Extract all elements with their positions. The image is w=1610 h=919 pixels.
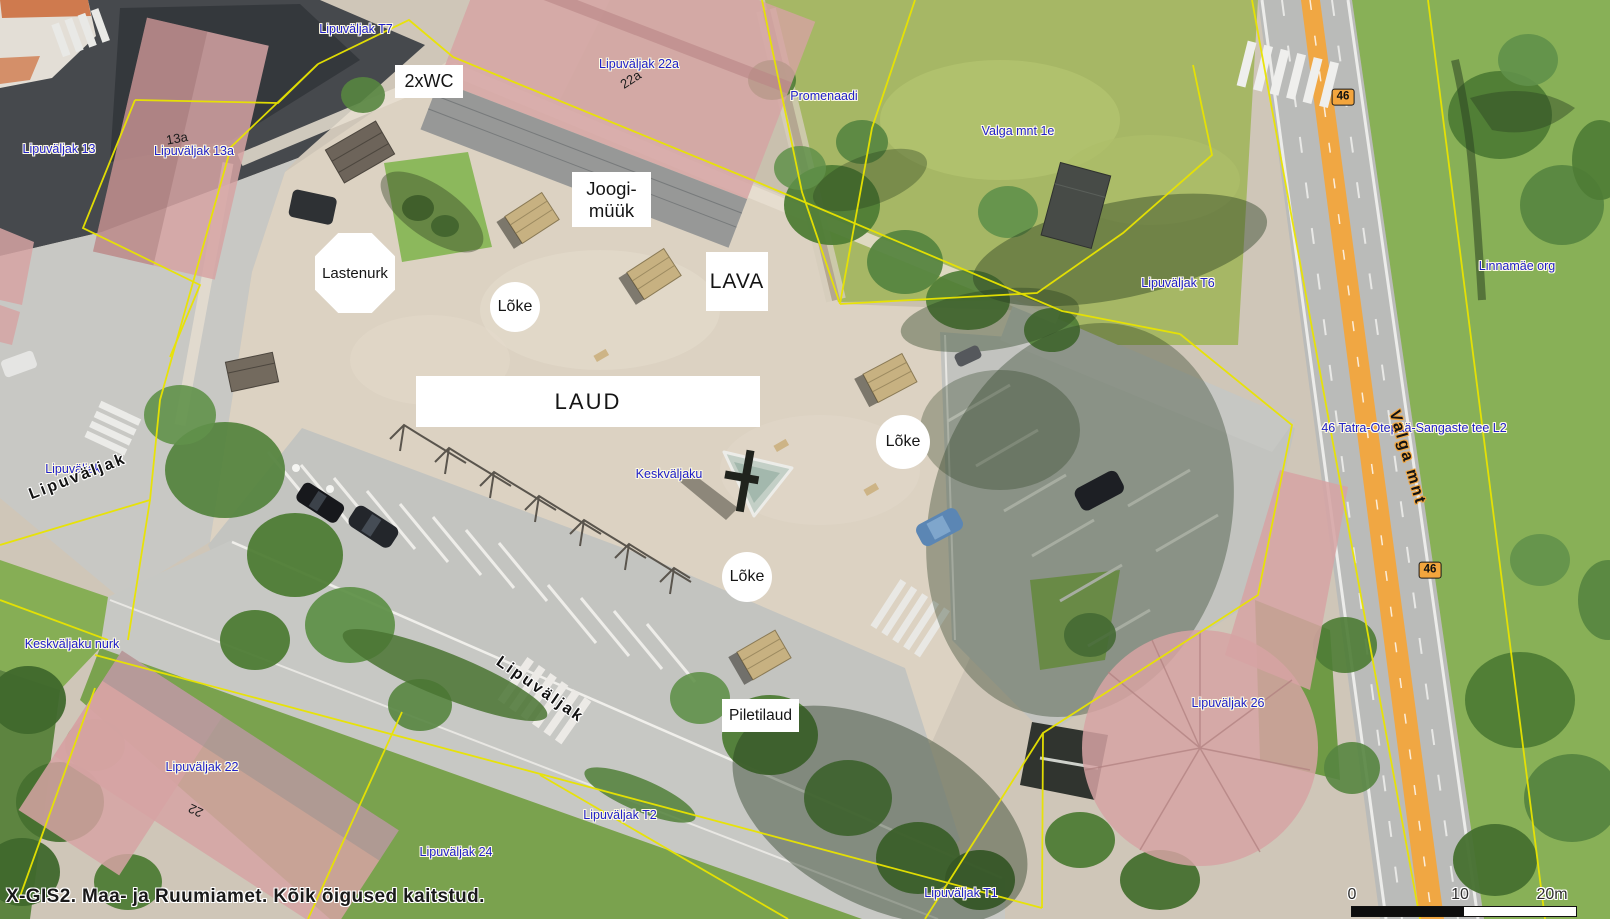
- attribution: X-GIS2. Maa- ja Ruumiamet. Kõik õigused …: [6, 886, 485, 908]
- parcel-label: Lipuväljak 22a: [599, 58, 679, 72]
- scale-bar-black-segment: [1352, 907, 1464, 916]
- parcel-label: Lipuväljak T1: [924, 887, 997, 901]
- parcel-label: Lipuväljak T6: [1141, 277, 1214, 291]
- parcel-label: Lipuväljak T7: [319, 23, 392, 37]
- scale-bar: [1351, 906, 1577, 917]
- poi-drinks-line2: müük: [589, 200, 634, 222]
- map-canvas[interactable]: 2xWC Joogi- müük LAVA LAUD Piletilaud La…: [0, 0, 1610, 919]
- parcel-label: Lipuväljak 26: [1192, 697, 1265, 711]
- parcel-label: Valga mnt 1e: [982, 125, 1055, 139]
- parcel-label: Lipuväljak 22: [166, 761, 239, 775]
- road-number-badge: 46: [1419, 562, 1442, 579]
- parcel-label: Lipuväljak 13a: [154, 145, 234, 159]
- parcel-label: Lipuväljak 24: [420, 846, 493, 860]
- scale-tick-0: 0: [1348, 886, 1357, 904]
- street-name-label: Lipuväljak: [27, 450, 130, 503]
- poi-bonfire-circle: Lõke: [722, 552, 772, 602]
- scale-tick-20m: 20m: [1536, 886, 1567, 904]
- parcel-label: Promenaadi: [790, 90, 857, 104]
- poi-wc-box: 2xWC: [395, 65, 463, 98]
- parcel-label: Lipuväljak 13: [23, 143, 96, 157]
- house-number-label: 22: [186, 800, 205, 819]
- annotation-layer: 2xWC Joogi- müük LAVA LAUD Piletilaud La…: [0, 0, 1610, 919]
- parcel-label: Keskväljaku: [636, 468, 703, 482]
- parcel-label: Linnamäe org: [1479, 260, 1555, 274]
- parcel-label: Keskväljaku nurk: [25, 638, 120, 652]
- poi-table-box: LAUD: [416, 376, 760, 427]
- poi-drinks-line1: Joogi-: [586, 178, 636, 200]
- poi-bonfire-circle: Lõke: [876, 415, 930, 469]
- street-name-label: Lipuväljak: [493, 653, 588, 727]
- parcel-label: Lipuväljak T2: [583, 809, 656, 823]
- poi-stage-box: LAVA: [706, 252, 768, 311]
- poi-ticket-table-box: Piletilaud: [722, 699, 799, 732]
- scale-tick-10: 10: [1451, 886, 1469, 904]
- poi-kids-corner-octagon: Lastenurk: [315, 233, 395, 313]
- poi-bonfire-circle: Lõke: [490, 282, 540, 332]
- parcel-label: 46 Tatra-Otepää-Sangaste tee L2: [1321, 422, 1506, 436]
- road-number-badge: 46: [1332, 89, 1355, 106]
- poi-drinks-box: Joogi- müük: [572, 172, 651, 227]
